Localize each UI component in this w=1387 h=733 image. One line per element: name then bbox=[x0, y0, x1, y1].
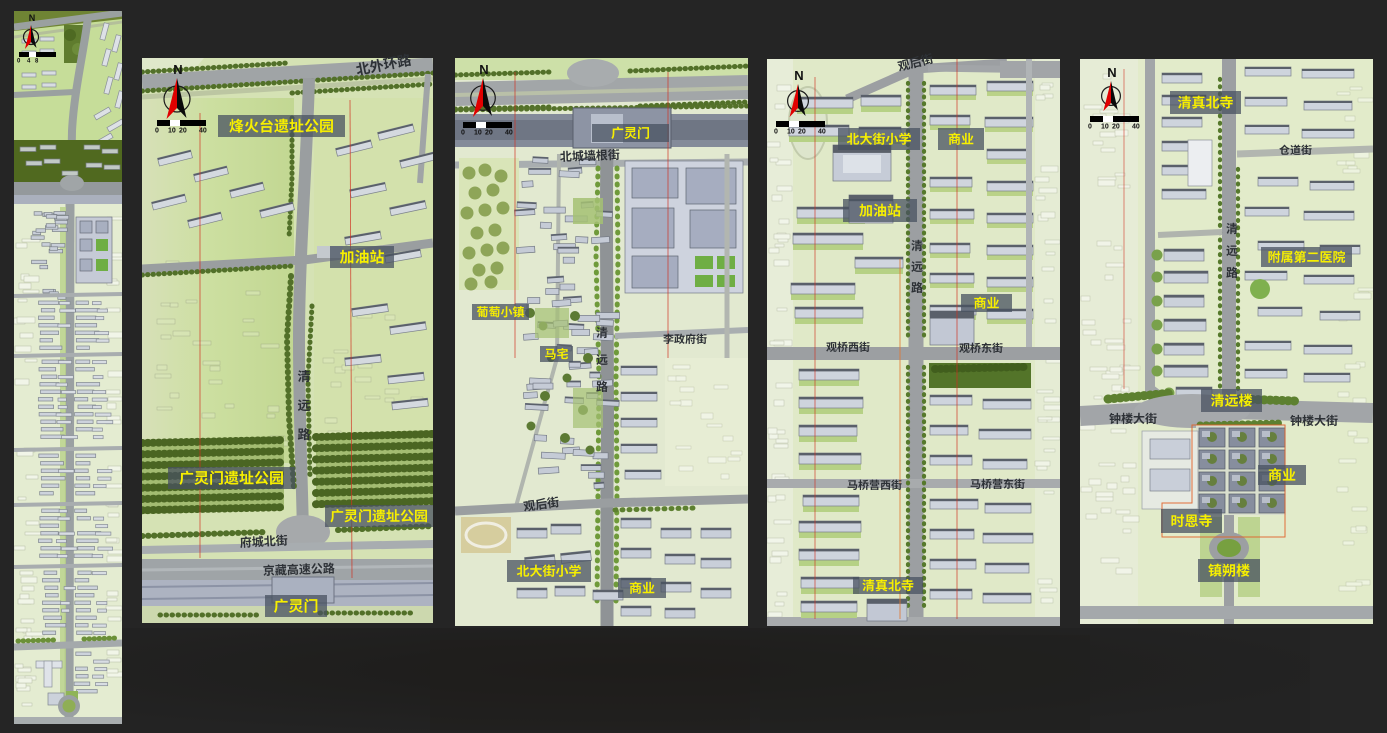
svg-text:10: 10 bbox=[1101, 124, 1109, 131]
svg-text:0: 0 bbox=[774, 129, 778, 136]
svg-text:N: N bbox=[794, 68, 803, 83]
svg-text:40: 40 bbox=[505, 130, 513, 137]
svg-text:0: 0 bbox=[155, 128, 159, 135]
svg-text:20: 20 bbox=[798, 129, 806, 136]
svg-text:20: 20 bbox=[485, 130, 493, 137]
svg-text:N: N bbox=[1107, 65, 1116, 80]
svg-text:0: 0 bbox=[461, 130, 465, 137]
svg-text:40: 40 bbox=[818, 129, 826, 136]
svg-text:0: 0 bbox=[1088, 124, 1092, 131]
svg-text:10: 10 bbox=[168, 128, 176, 135]
svg-text:40: 40 bbox=[199, 128, 207, 135]
svg-text:N: N bbox=[29, 13, 36, 23]
svg-text:40: 40 bbox=[1132, 124, 1140, 131]
svg-text:N: N bbox=[173, 62, 182, 77]
svg-text:20: 20 bbox=[179, 128, 187, 135]
svg-text:10: 10 bbox=[474, 130, 482, 137]
svg-text:10: 10 bbox=[787, 129, 795, 136]
svg-text:20: 20 bbox=[1112, 124, 1120, 131]
svg-text:N: N bbox=[479, 62, 488, 77]
